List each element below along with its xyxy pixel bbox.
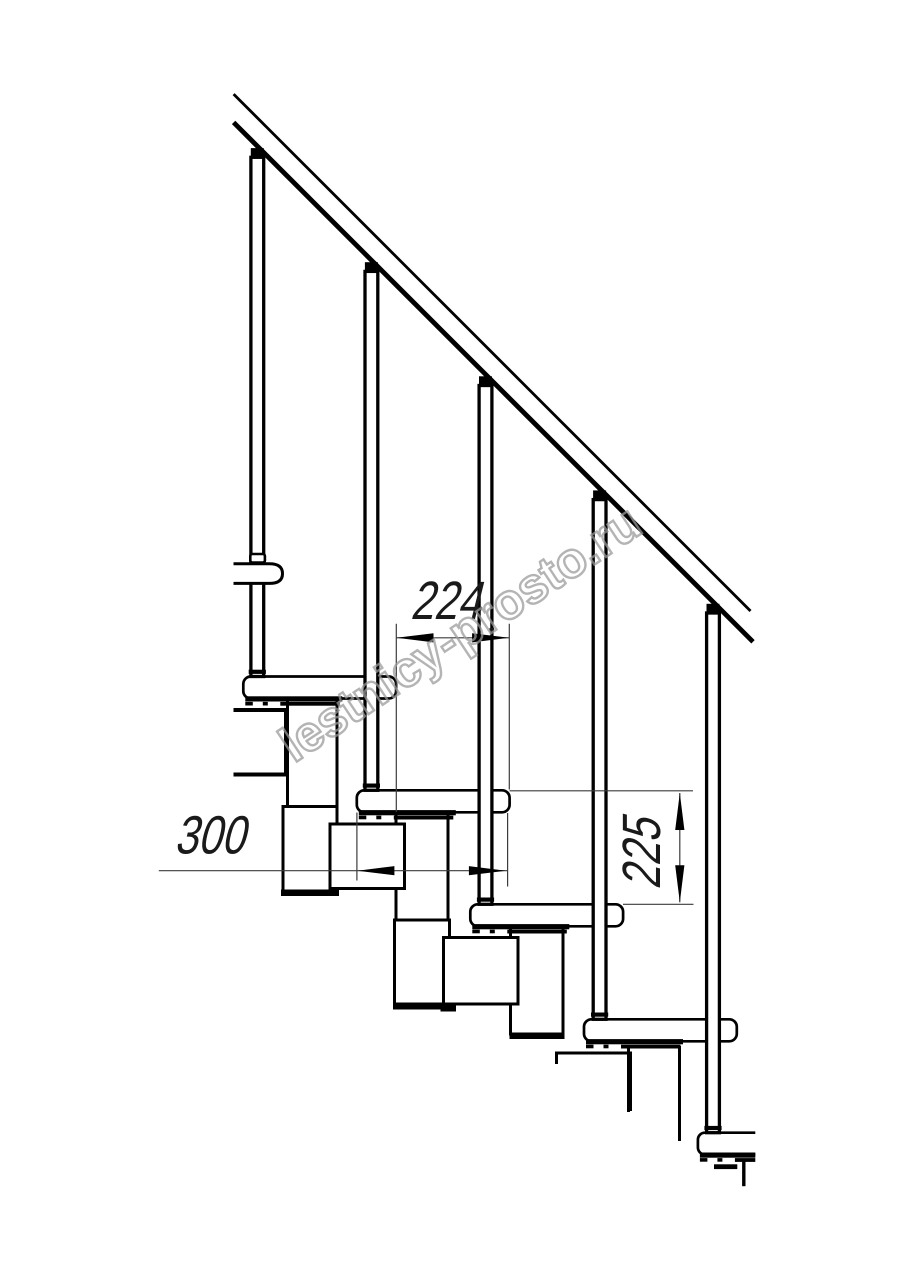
svg-text:300: 300 xyxy=(171,805,256,865)
svg-text:225: 225 xyxy=(612,807,672,892)
